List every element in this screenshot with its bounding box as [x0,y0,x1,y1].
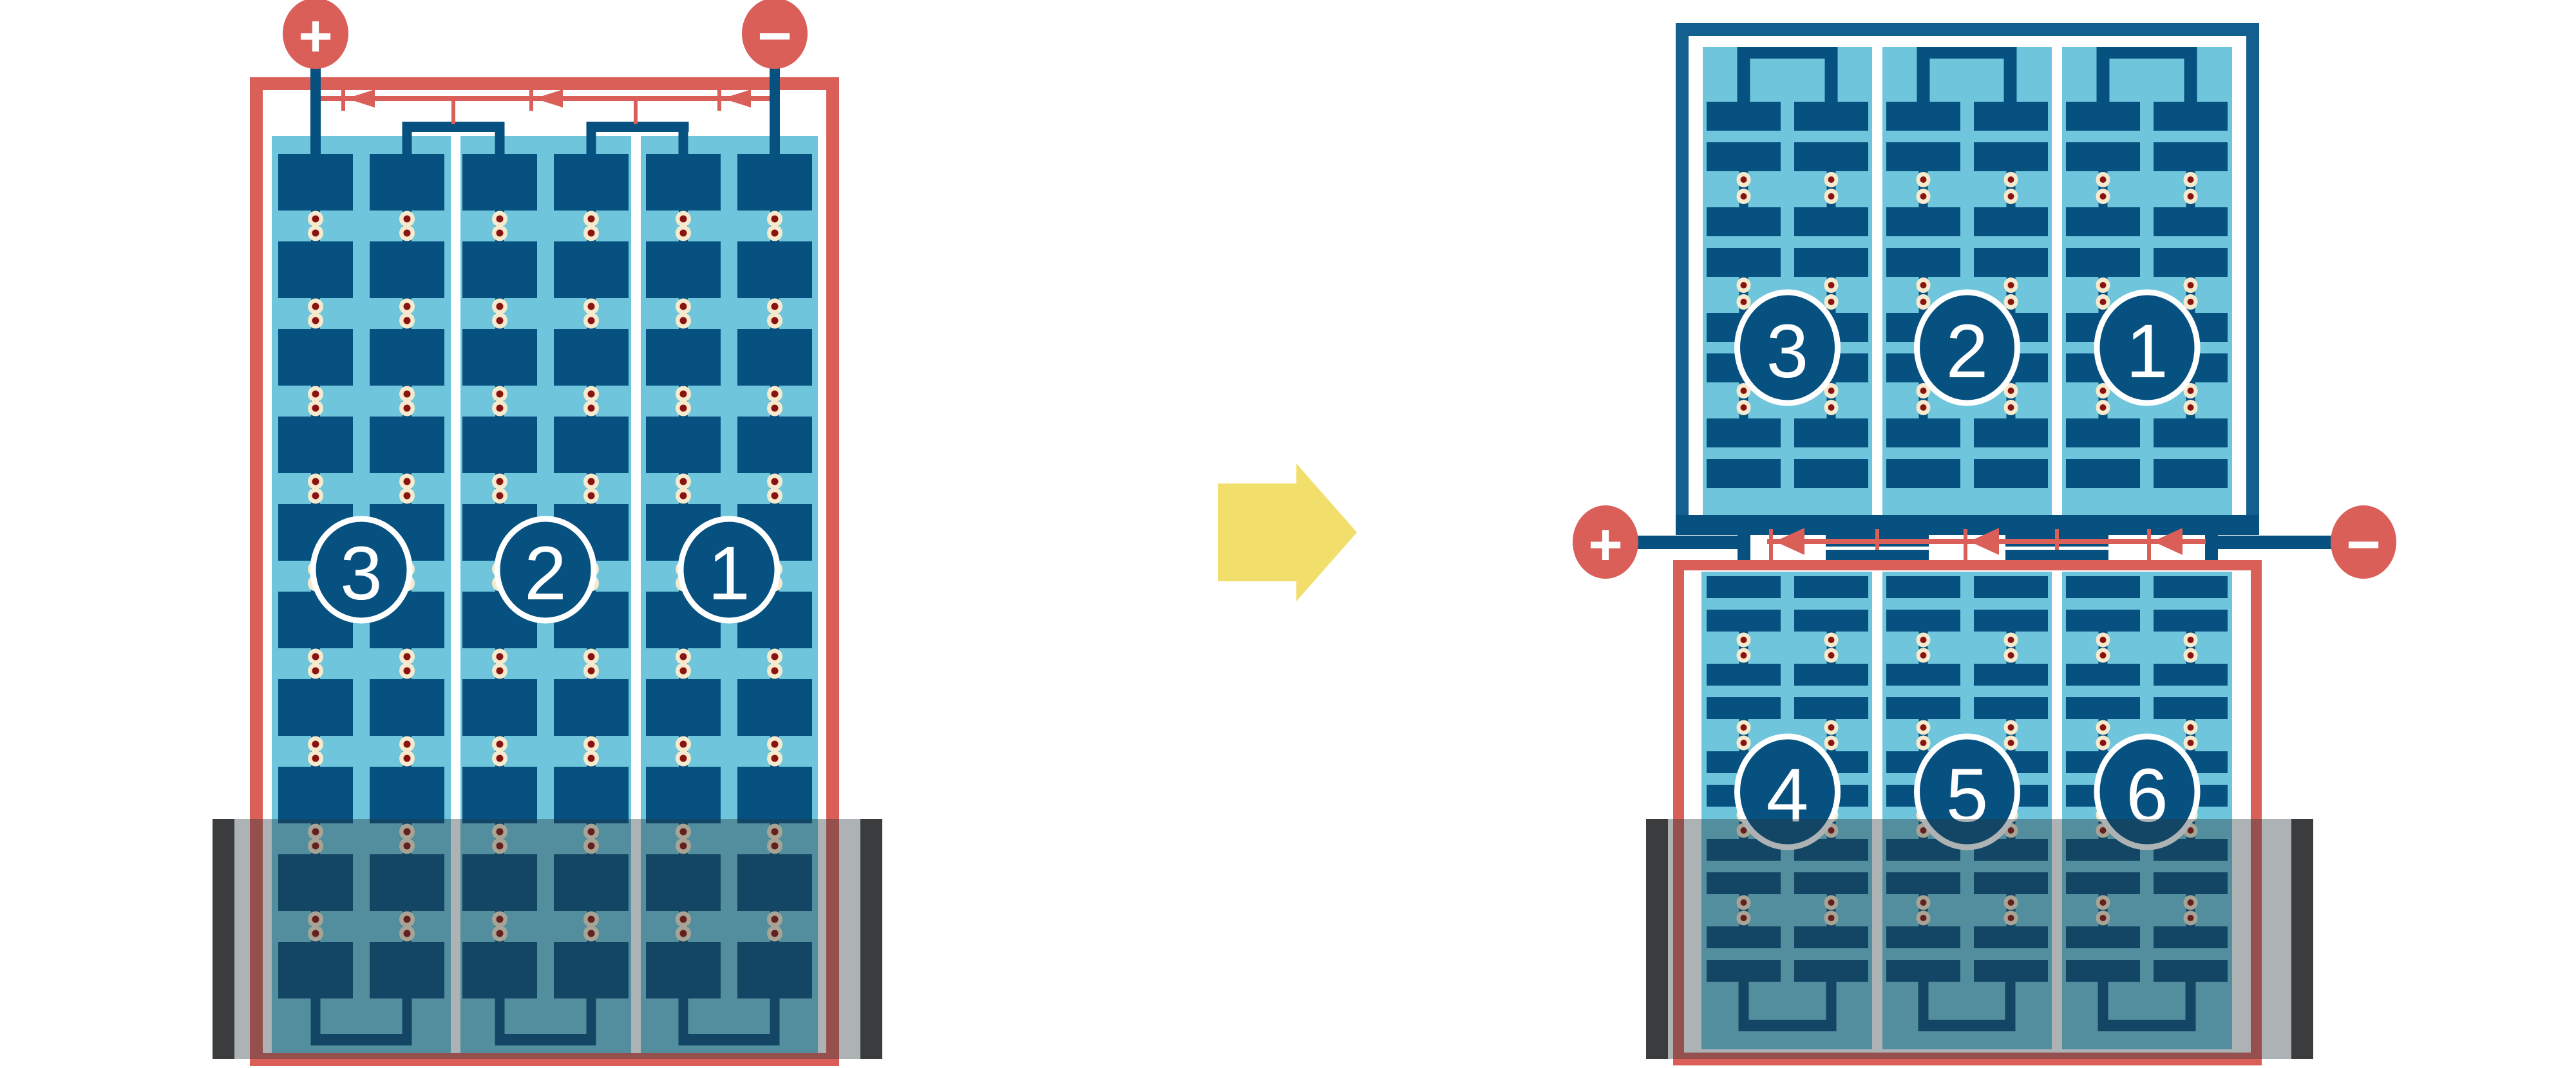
electrolyte-tank [1703,47,2232,515]
frame-top [1673,560,2262,570]
cell-number: 1 [708,531,750,616]
frame-right [2246,23,2259,535]
current-drop-line [451,98,455,124]
right-battery-top-unit: 3 2 1 [1676,23,2259,547]
cell-number-badge: 3 [313,519,410,621]
terminal-post [770,61,780,183]
diagram-canvas: 3 2 1 + − [0,0,2576,1068]
current-tick [1964,529,1967,560]
cell-separator [1872,47,1882,515]
bridge-leg [2184,59,2197,102]
negative-terminal: − [2331,505,2396,579]
case-end-cap [860,819,882,1059]
current-tick [529,89,533,111]
cell-number: 2 [1946,309,1989,394]
current-flow-arrow-line [321,89,770,124]
frame-top [1676,23,2259,36]
case-end-cap [1646,819,1668,1059]
overlay-glass [213,819,882,1059]
minus-icon: − [2346,512,2381,577]
case-overlay [1646,819,2313,1059]
current-tick [717,89,721,111]
bridge-leg [2097,59,2110,102]
case-end-cap [213,819,234,1059]
terminal-post [310,61,321,183]
cell-number: 3 [1766,309,1809,394]
current-tick [1769,529,1773,560]
bridge-bar [1738,47,1838,59]
plus-icon: + [298,3,333,69]
cell-number-badge: 1 [2097,292,2197,403]
cell-number: 2 [524,531,567,616]
left-battery: 3 2 1 + − [213,0,882,1066]
cell-separator [2052,47,2062,515]
battery-rewiring-diagram: 3 2 1 + − [0,0,2576,1068]
plus-icon: + [1588,512,1623,577]
case-end-cap [2291,819,2313,1059]
current-tick [341,89,345,111]
positive-terminal: + [283,0,348,69]
positive-terminal: + [1573,505,1638,579]
bridge-leg [1825,59,1838,102]
current-tick [2147,529,2151,560]
bridge-leg [1738,59,1750,102]
cell-number: 3 [340,531,383,616]
minus-icon: − [757,3,792,69]
transform-arrow-icon [1218,464,1357,601]
bridge-bar [1917,47,2017,59]
bridge-leg [1917,59,1930,102]
frame-top [250,77,839,90]
cell-number-badge: 1 [681,519,777,621]
bridge-bar [2097,47,2197,59]
overlay-glass [1646,819,2313,1059]
current-arrowhead [535,89,563,108]
cell-number: 1 [2126,309,2168,394]
right-battery-bottom-unit: 4 5 6 [1646,550,2313,1065]
bridge-leg [2004,59,2017,102]
current-arrowhead [723,89,751,108]
cell-number-badge: 2 [497,519,594,621]
case-overlay [213,819,882,1059]
inter-unit-tab [2005,550,2108,561]
current-arrowhead [346,89,375,108]
frame-left [1676,23,1689,535]
cell-number-badge: 2 [1917,292,2018,403]
inter-unit-tab [1826,550,1929,561]
junction-post [2205,535,2218,561]
current-drop-line [634,98,638,124]
negative-terminal: − [742,0,808,69]
cell-number-badge: 3 [1738,292,1838,403]
